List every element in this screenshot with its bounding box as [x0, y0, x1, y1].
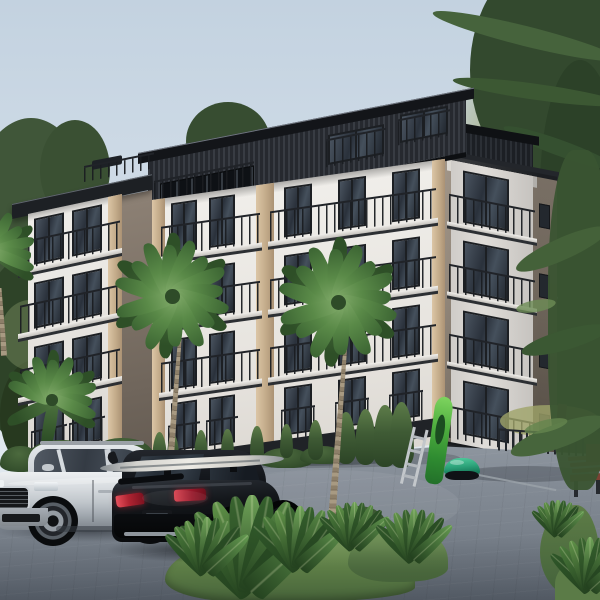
tropical-plant	[0, 0, 600, 600]
tropical-plants	[0, 0, 600, 600]
architectural-rendering	[0, 0, 600, 600]
